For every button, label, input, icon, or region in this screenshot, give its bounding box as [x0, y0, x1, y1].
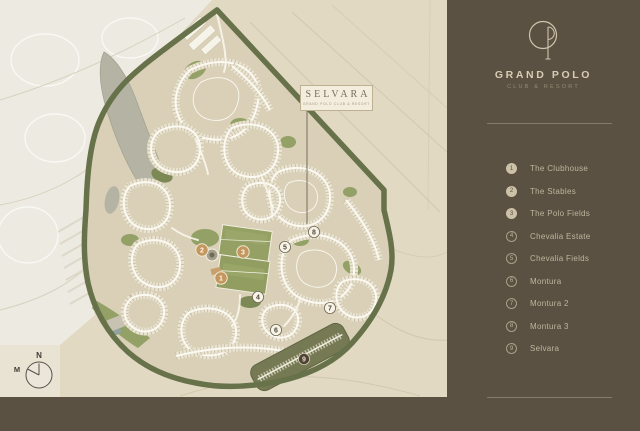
- map-marker-1[interactable]: 1: [215, 272, 227, 284]
- brand-subtitle: CLUB & RESORT: [447, 84, 640, 90]
- legend-badge-7: 7: [506, 298, 517, 309]
- map-marker-6[interactable]: 6: [270, 324, 281, 335]
- sidebar-panel: GRAND POLO CLUB & RESORT 1 The Clubhouse…: [447, 0, 640, 431]
- legend-item-clubhouse[interactable]: 1 The Clubhouse: [506, 163, 591, 174]
- legend-item-polo-fields[interactable]: 3 The Polo Fields: [506, 208, 591, 219]
- legend-item-montura[interactable]: 6 Montura: [506, 276, 591, 287]
- sidebar-divider-top: [487, 123, 612, 124]
- map-marker-7[interactable]: 7: [324, 302, 335, 313]
- map-marker-8[interactable]: 8: [308, 226, 319, 237]
- masterplan-page: 1 2 3 4 5 6 7 8 9: [0, 0, 640, 431]
- legend-badge-4: 4: [506, 231, 517, 242]
- legend-badge-1: 1: [506, 163, 517, 174]
- legend-item-selvara[interactable]: 9 Selvara: [506, 343, 591, 354]
- legend-list: 1 The Clubhouse 2 The Stables 3 The Polo…: [506, 163, 591, 354]
- map-canvas: 1 2 3 4 5 6 7 8 9: [0, 0, 447, 431]
- svg-text:3: 3: [241, 250, 245, 257]
- legend-item-chevalia-fields[interactable]: 5 Chevalia Fields: [506, 253, 591, 264]
- sidebar-divider-bottom: [487, 397, 612, 398]
- selvara-label-box: SELVARA GRAND POLO CLUB & RESORT: [300, 85, 373, 111]
- brand-title: GRAND POLO: [447, 69, 640, 81]
- grand-polo-logo-icon: [447, 18, 640, 66]
- legend-item-stables[interactable]: 2 The Stables: [506, 186, 591, 197]
- selvara-label-title: SELVARA: [303, 90, 371, 100]
- legend-label-3: The Polo Fields: [530, 209, 590, 218]
- legend-item-montura-3[interactable]: 8 Montura 3: [506, 321, 591, 332]
- legend-badge-2: 2: [506, 186, 517, 197]
- svg-text:4: 4: [256, 295, 260, 302]
- legend-label-1: The Clubhouse: [530, 164, 588, 173]
- legend-badge-5: 5: [506, 253, 517, 264]
- legend-item-chevalia-estate[interactable]: 4 Chevalia Estate: [506, 231, 591, 242]
- legend-label-9: Selvara: [530, 344, 559, 353]
- map-marker-2[interactable]: 2: [196, 244, 208, 256]
- masterplan-map: 1 2 3 4 5 6 7 8 9: [0, 0, 447, 431]
- legend-badge-3: 3: [506, 208, 517, 219]
- legend-label-2: The Stables: [530, 187, 576, 196]
- svg-text:9: 9: [302, 357, 306, 364]
- svg-text:1: 1: [219, 276, 223, 283]
- svg-text:8: 8: [312, 230, 316, 237]
- legend-badge-6: 6: [506, 276, 517, 287]
- legend-badge-9: 9: [506, 343, 517, 354]
- legend-label-4: Chevalia Estate: [530, 232, 591, 241]
- map-marker-5[interactable]: 5: [279, 241, 290, 252]
- svg-text:6: 6: [274, 328, 278, 335]
- svg-text:2: 2: [200, 248, 204, 255]
- map-marker-9[interactable]: 9: [298, 353, 309, 364]
- legend-label-8: Montura 3: [530, 322, 569, 331]
- compass-magnetic-label: M: [14, 365, 20, 374]
- map-marker-3[interactable]: 3: [237, 246, 249, 258]
- legend-label-7: Montura 2: [530, 299, 569, 308]
- legend-label-6: Montura: [530, 277, 561, 286]
- legend-badge-8: 8: [506, 321, 517, 332]
- selvara-label-subtitle: GRAND POLO CLUB & RESORT: [303, 102, 370, 106]
- map-marker-4[interactable]: 4: [252, 291, 263, 302]
- svg-text:7: 7: [328, 306, 332, 313]
- legend-item-montura-2[interactable]: 7 Montura 2: [506, 298, 591, 309]
- legend-label-5: Chevalia Fields: [530, 254, 589, 263]
- bottom-bar: [0, 397, 447, 431]
- svg-text:5: 5: [283, 245, 287, 252]
- compass-north-label: N: [36, 351, 42, 360]
